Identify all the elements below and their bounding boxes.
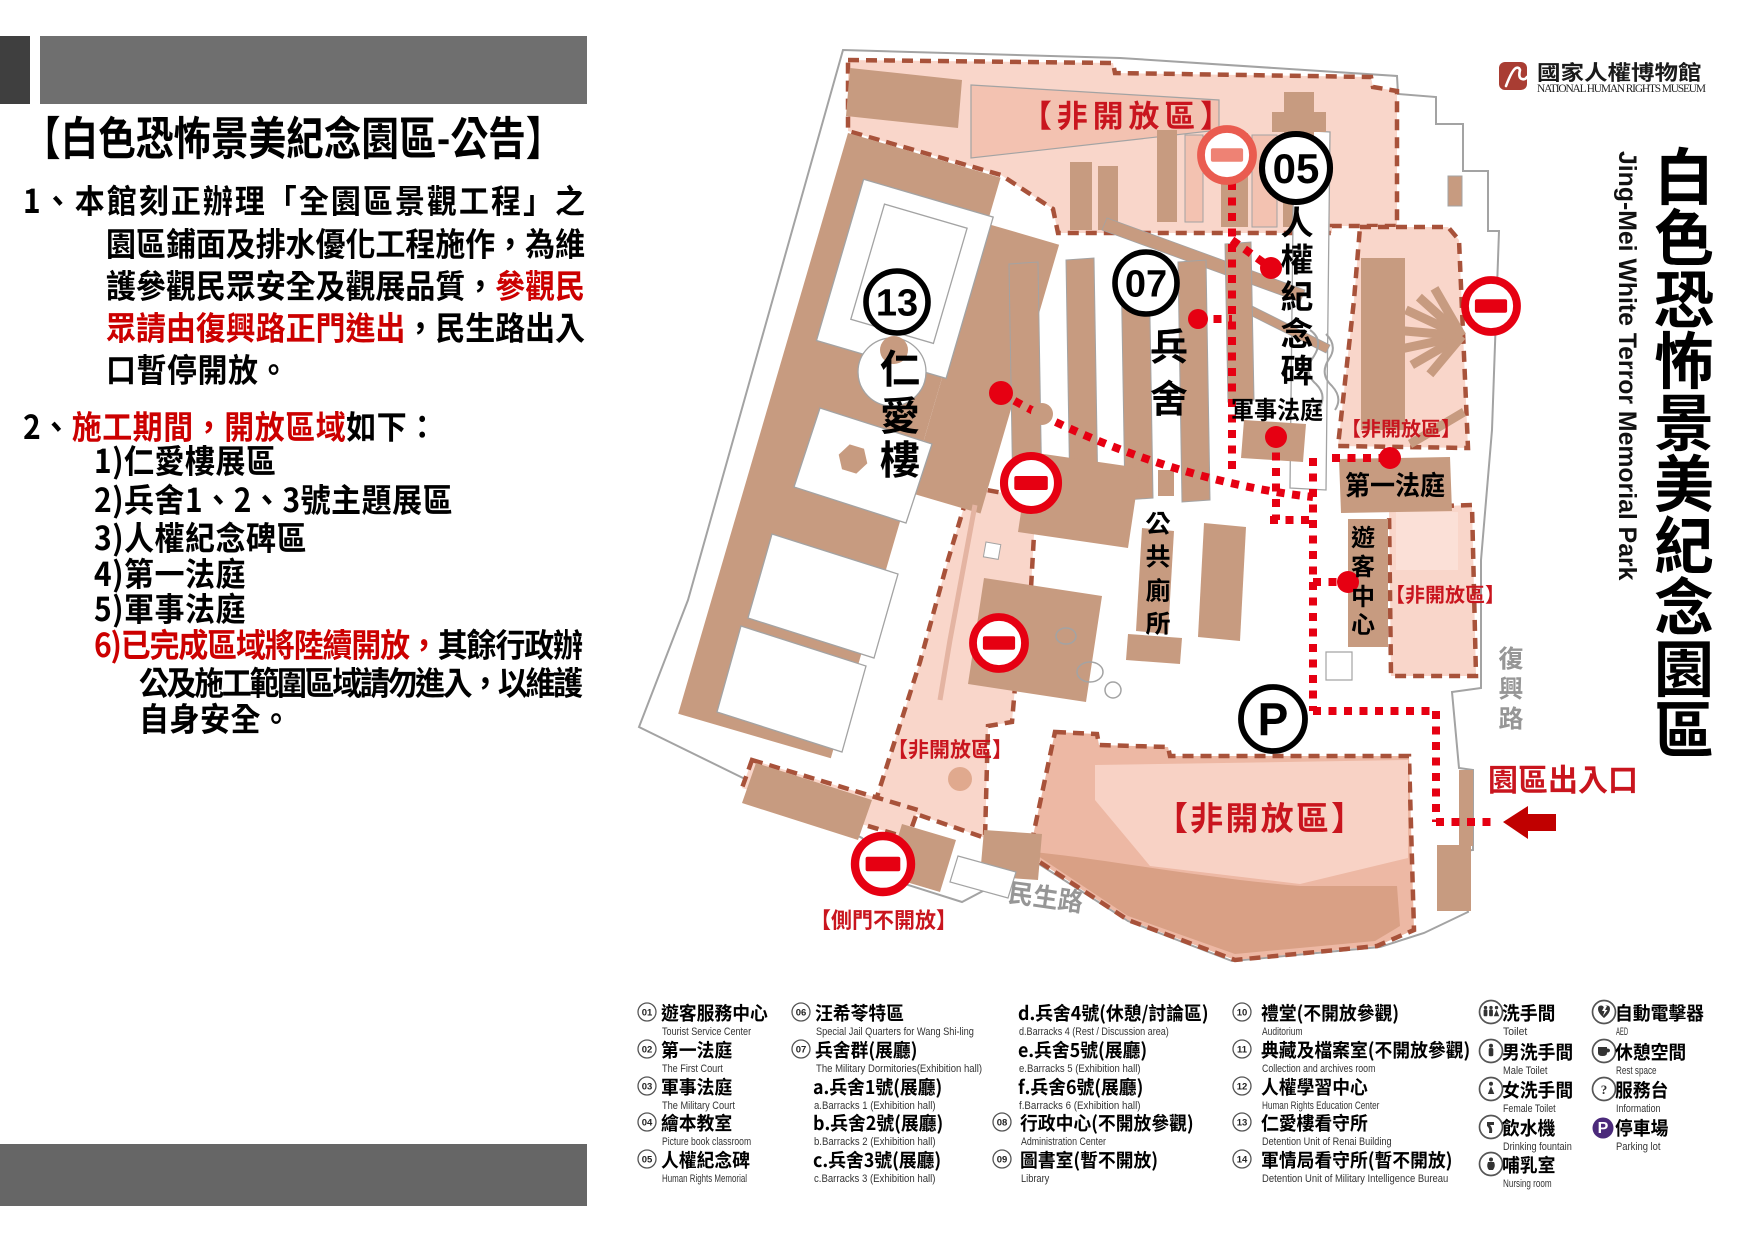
svg-text:c.Barracks 3 (Exhibition hall): c.Barracks 3 (Exhibition hall) <box>814 1173 936 1185</box>
svg-text:11: 11 <box>1237 1044 1248 1055</box>
svg-text:Rest space: Rest space <box>1616 1065 1657 1077</box>
svg-text:Detention Unit of Renai Buildi: Detention Unit of Renai Building <box>1262 1136 1392 1148</box>
svg-text:Library: Library <box>1021 1173 1050 1185</box>
svg-text:Administration Center: Administration Center <box>1021 1136 1106 1148</box>
svg-text:Human Rights Education Center: Human Rights Education Center <box>1262 1100 1380 1112</box>
svg-text:06: 06 <box>796 1007 807 1018</box>
svg-text:The Military Court: The Military Court <box>662 1100 735 1112</box>
svg-text:01: 01 <box>642 1007 653 1018</box>
svg-text:b.Barracks 2 (Exhibition hall): b.Barracks 2 (Exhibition hall) <box>814 1136 936 1148</box>
svg-text:Female Toilet: Female Toilet <box>1503 1103 1556 1115</box>
svg-text:13: 13 <box>876 283 918 325</box>
svg-text:Nursing room: Nursing room <box>1503 1178 1552 1190</box>
svg-text:07: 07 <box>1125 264 1167 306</box>
svg-text:14: 14 <box>1237 1154 1248 1165</box>
svg-text:02: 02 <box>642 1044 653 1055</box>
svg-text:AED: AED <box>1616 1026 1628 1038</box>
svg-text:Male Toilet: Male Toilet <box>1503 1065 1548 1077</box>
svg-text:12: 12 <box>1237 1081 1248 1092</box>
svg-text:The Military Dormitories(Exhib: The Military Dormitories(Exhibition hall… <box>816 1063 982 1075</box>
svg-text:05: 05 <box>642 1154 653 1165</box>
svg-text:e.Barracks 5 (Exhibition hall): e.Barracks 5 (Exhibition hall) <box>1019 1063 1141 1075</box>
svg-text:08: 08 <box>997 1117 1008 1128</box>
svg-text:Drinking fountain: Drinking fountain <box>1503 1141 1572 1153</box>
svg-text:04: 04 <box>642 1117 653 1128</box>
svg-text:Human Rights Memorial: Human Rights Memorial <box>662 1173 747 1185</box>
svg-text:10: 10 <box>1237 1007 1248 1018</box>
svg-text:05: 05 <box>1273 145 1320 192</box>
svg-text:Auditorium: Auditorium <box>1262 1026 1303 1038</box>
svg-text:?: ? <box>1601 1082 1608 1097</box>
svg-text:Special Jail Quarters for Wang: Special Jail Quarters for Wang Shi-ling <box>816 1026 974 1038</box>
svg-text:f.Barracks 6 (Exhibition hall): f.Barracks 6 (Exhibition hall) <box>1019 1100 1141 1112</box>
svg-text:P: P <box>1598 1120 1609 1137</box>
svg-text:a.Barracks 1 (Exhibition hall): a.Barracks 1 (Exhibition hall) <box>814 1100 936 1112</box>
svg-text:Tourist Service Center: Tourist Service Center <box>662 1026 751 1038</box>
svg-text:Detention Unit of Military Int: Detention Unit of Military Intelligence … <box>1262 1173 1448 1185</box>
svg-text:NATIONAL HUMAN RIGHTS MUSEUM: NATIONAL HUMAN RIGHTS MUSEUM <box>1537 83 1706 95</box>
svg-text:Toilet: Toilet <box>1503 1026 1527 1038</box>
svg-text:The First Court: The First Court <box>662 1063 723 1075</box>
svg-text:d.Barracks 4 (Rest / Discussio: d.Barracks 4 (Rest / Discussion area) <box>1019 1026 1169 1038</box>
svg-text:03: 03 <box>642 1081 653 1092</box>
svg-text:Parking lot: Parking lot <box>1616 1141 1661 1153</box>
svg-text:P: P <box>1258 694 1289 746</box>
svg-text:Picture book classroom: Picture book classroom <box>662 1136 751 1148</box>
svg-text:09: 09 <box>997 1154 1008 1165</box>
svg-text:Jing-Mei White Terror Memorial: Jing-Mei White Terror Memorial Park <box>1613 151 1640 581</box>
svg-text:Collection and archives room: Collection and archives room <box>1262 1063 1375 1075</box>
svg-text:Information: Information <box>1616 1103 1661 1115</box>
svg-text:07: 07 <box>796 1044 807 1055</box>
svg-text:13: 13 <box>1237 1117 1248 1128</box>
